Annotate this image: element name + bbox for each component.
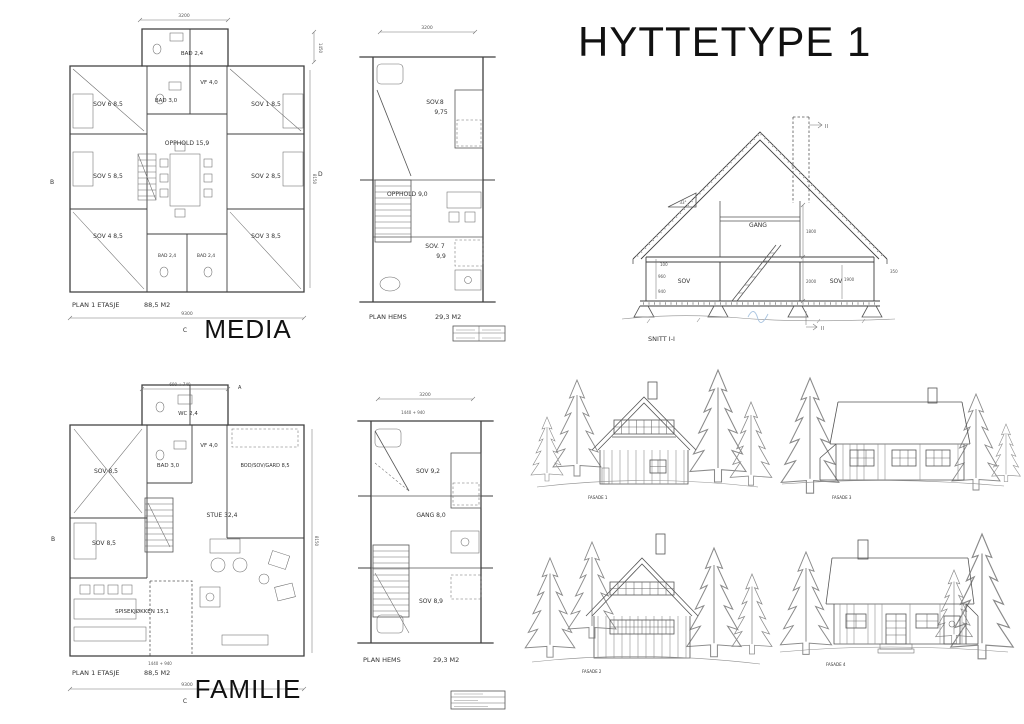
title-stamp <box>451 691 505 709</box>
room-label: BAD 2,4 <box>158 253 176 259</box>
dim-100: 100 <box>660 262 668 267</box>
fhems-footer-label: PLAN HEMS <box>363 656 401 664</box>
room-label: SOV 8,5 <box>94 468 118 475</box>
media-walls <box>70 29 304 292</box>
page-title: HYTTETYPE 1 <box>578 18 871 66</box>
dim-2000: 2000 <box>806 279 817 284</box>
hems-footer-label: PLAN HEMS <box>369 313 407 321</box>
elevation-4: FASADE 4 <box>768 520 1018 690</box>
dim-960: 960 <box>658 274 666 279</box>
cabin-gable <box>532 534 760 664</box>
room-label-gang: GANG <box>749 222 767 229</box>
elevation-caption: FASADE 3 <box>832 495 852 500</box>
room-label: SOV 8,9 <box>419 598 443 605</box>
media-dim-right: 8150 <box>312 174 317 185</box>
familie-hems-plan: 3200 1440 + 940 SOV 9,2 GANG 8,0 SOV 8,9… <box>333 383 518 721</box>
dim-350: 350 <box>890 269 898 274</box>
hems-dim-top: 3200 <box>421 25 433 31</box>
room-label: SOV 1 8,5 <box>251 101 281 108</box>
fhems-dim-top2: 1440 + 940 <box>401 410 425 415</box>
hems-room-labels: SOV.8 9,75 OPPHOLD 9,0 SOV. 7 9,9 <box>387 99 448 260</box>
room-label: BAD 3,0 <box>157 463 180 469</box>
elevation-caption: FASADE 1 <box>588 495 608 500</box>
room-label: OPPHOLD 9,0 <box>387 191 428 198</box>
media-dimensions: 3200 1450 8150 9300 B C D <box>50 13 323 334</box>
familie-floor-plan: 690 + 740 A 8150 1440 + 940 9300 B C WC … <box>42 373 334 707</box>
room-label: VF 4,0 <box>200 443 218 449</box>
hems-walls <box>360 57 495 302</box>
section-roof <box>633 132 887 264</box>
room-label: SOV 8,5 <box>92 540 116 547</box>
room-label: VF 4,0 <box>200 80 218 86</box>
drawing-sheet: HYTTETYPE 1 320 <box>0 0 1024 724</box>
room-label: SOV 4 8,5 <box>93 233 123 240</box>
familie-footer-label: PLAN 1 ETASJE <box>72 669 119 677</box>
hems-dimensions: 3200 <box>378 25 477 34</box>
familie-furniture <box>74 395 298 645</box>
familie-dim-bottom2: 1440 + 940 <box>148 661 172 666</box>
room-label: BAD 2,4 <box>197 253 215 259</box>
familie-dim-right: 8150 <box>314 536 319 547</box>
elevation-1: FASADE 1 <box>522 362 770 514</box>
media-hems-plan: 3200 SOV.8 9,75 OPPHOLD 9,0 SOV. 7 9,9 P… <box>335 12 517 342</box>
section-drawing: II 33° 1800 2000 100 960 940 1900 350 <box>610 105 905 350</box>
familie-walls <box>70 385 304 656</box>
room-label: SOV 3 8,5 <box>251 233 281 240</box>
familie-dim-top: 690 + 740 <box>169 382 191 387</box>
fhems-dimensions: 3200 1440 + 940 <box>376 392 475 415</box>
room-label: STUE 32,4 <box>207 512 238 519</box>
room-label: 9,75 <box>434 109 448 116</box>
media-dim-top: 3200 <box>178 13 190 19</box>
dim-1900: 1900 <box>844 277 855 282</box>
title-stamp <box>453 326 505 341</box>
room-label: SOV 2 8,5 <box>251 173 281 180</box>
room-label: SOV. 7 <box>425 243 445 250</box>
fhems-walls <box>358 421 493 643</box>
room-label: OPPHOLD 15,9 <box>165 140 210 147</box>
media-room-labels: BAD 2,4 VF 4,0 BAD 3,0 SOV 6 8,5 SOV 1 8… <box>93 51 281 259</box>
elevation-caption: FASADE 2 <box>582 669 602 674</box>
pine-trees <box>525 542 772 657</box>
room-label: SOV 5 8,5 <box>93 173 123 180</box>
room-label: SOV 6 8,5 <box>93 101 123 108</box>
familie-axis-top: A <box>238 385 242 391</box>
pencil-scribble <box>748 311 768 322</box>
media-footer-label: PLAN 1 ETASJE <box>72 301 119 309</box>
media-axis-right: D <box>318 171 323 178</box>
roof-angle: 33° <box>679 200 686 205</box>
elevation-3: FASADE 2 <box>520 520 772 690</box>
room-label: SOV.8 <box>426 99 444 106</box>
fhems-dim-top: 3200 <box>419 392 431 398</box>
section-label: SNITT I-I <box>648 335 675 343</box>
room-label: BAD 3,0 <box>155 98 178 104</box>
section-dimensions: 33° 1800 2000 100 960 940 1900 350 <box>656 193 898 303</box>
dim-1800: 1800 <box>806 229 817 234</box>
familie-caption: FAMILIE <box>158 674 338 705</box>
media-floor-plan: 3200 1450 8150 9300 B C D BAD 2,4 VF 4,0… <box>42 4 334 340</box>
room-label: 9,9 <box>436 253 446 260</box>
room-label: BAD 2,4 <box>181 51 204 57</box>
section-marker-bottom: II <box>821 326 824 332</box>
room-label: WC 2,4 <box>178 411 198 417</box>
pine-trees <box>781 378 1020 493</box>
media-furniture <box>73 33 303 289</box>
section-marker-top: II <box>825 124 828 130</box>
familie-room-labels: WC 2,4 BAD 3,0 VF 4,0 SOV 8,5 BOD/SOV/GA… <box>92 411 290 615</box>
room-label-sov-right: SOV <box>830 278 843 285</box>
fhems-room-labels: SOV 9,2 GANG 8,0 SOV 8,9 <box>416 468 446 605</box>
elevation-caption: FASADE 4 <box>826 662 846 667</box>
section-room-labels: GANG SOV SOV <box>678 222 843 285</box>
hems-footer-area: 29,3 M2 <box>435 313 461 321</box>
familie-axis-left: B <box>51 536 55 543</box>
elevation-2: FASADE 3 <box>768 362 1016 514</box>
media-caption: MEDIA <box>158 314 338 345</box>
section-marker-bottom-group: II <box>806 311 824 332</box>
room-label: GANG 8,0 <box>416 512 446 519</box>
media-axis-left: B <box>50 179 54 186</box>
media-footer-area: 88,5 M2 <box>144 301 170 309</box>
media-dim-right-top: 1450 <box>318 43 323 54</box>
fhems-footer-area: 29,3 M2 <box>433 656 459 664</box>
room-label: BOD/SOV/GARD 8,5 <box>240 463 289 469</box>
room-label-sov-left: SOV <box>678 278 691 285</box>
room-label: SPISEKJØKKEN 15,1 <box>115 608 169 615</box>
room-label: SOV 9,2 <box>416 468 440 475</box>
dim-940: 940 <box>658 289 666 294</box>
